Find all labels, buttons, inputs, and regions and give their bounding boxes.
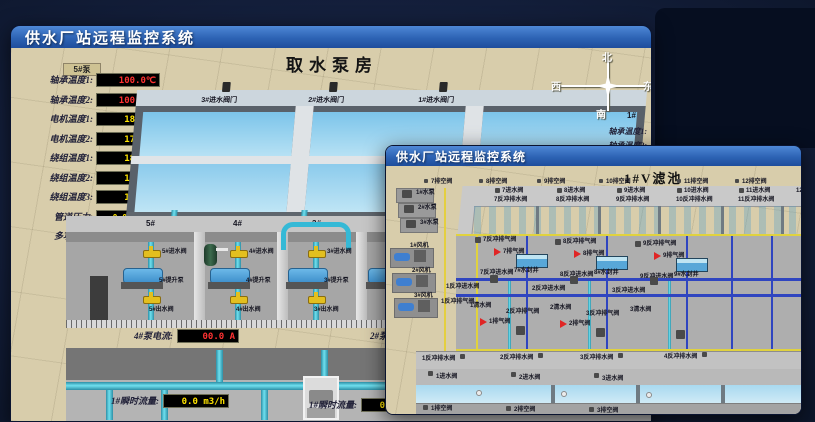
yellow-line	[456, 234, 801, 236]
desktop: { "colors": { "titlebar_blue": "#2d63b4"…	[0, 0, 815, 420]
pump-base	[121, 282, 163, 289]
valve-icon[interactable]	[702, 352, 707, 357]
valve-icon[interactable]	[596, 328, 605, 337]
inlet-valve-icon[interactable]	[677, 188, 682, 193]
inlet-valve-icon[interactable]	[495, 188, 500, 193]
vent-valve-icon[interactable]	[589, 407, 594, 412]
pump-label: 5#提升泵	[159, 278, 184, 284]
water-pump-icon[interactable]	[406, 220, 416, 228]
equipment-label: 3#风机	[414, 293, 433, 299]
vent-valve-label: 12排空阀	[742, 179, 767, 185]
seal-well-tank	[596, 256, 628, 270]
background-window	[655, 8, 815, 148]
upper-inlet-label: 8进水阀	[564, 188, 585, 194]
cell-number: 5#	[146, 220, 155, 228]
lower-vent-label: 1排空阀	[431, 406, 452, 412]
bw-air-label: 8反冲排气阀	[563, 239, 596, 245]
pool-divider	[598, 206, 601, 234]
compass-star	[595, 73, 621, 99]
fan-motor[interactable]	[396, 278, 412, 286]
seal-well-tank	[516, 254, 548, 268]
upper-inlet-label: 10进水阀	[684, 188, 709, 194]
valve-icon[interactable]	[516, 326, 525, 335]
window-title: 供水厂站远程监控系统	[25, 27, 195, 48]
blue-pipe	[456, 278, 801, 281]
upper-drain-label: 11反冲排水阀	[738, 197, 774, 203]
fan-box	[414, 250, 426, 262]
blue-pipe-vert	[771, 236, 773, 349]
valve-icon[interactable]	[428, 371, 433, 376]
filter-scene: 1#V滤池 7排空阀 8排空阀 9排空阀 10排空阀 11排空阀 12排空阀 1…	[386, 166, 801, 414]
pool-divider	[721, 385, 725, 403]
vent-valve-icon[interactable]	[599, 179, 603, 183]
current-value: 00.0 A	[177, 329, 239, 343]
blue-pipe-vert	[606, 236, 608, 349]
inlet-valve[interactable]	[143, 250, 161, 258]
bw-inlet2-label: 2反冲进水阀	[532, 286, 565, 292]
inlet-valve-label: 5#进水阀	[162, 249, 187, 255]
pool-divider	[658, 206, 661, 234]
valve-icon[interactable]	[618, 353, 623, 358]
pool-cell	[139, 112, 295, 156]
valve-icon[interactable]	[555, 239, 561, 245]
cell-number: 4#	[233, 220, 242, 228]
vent-valve-icon[interactable]	[537, 179, 541, 183]
readout-label: 绕组温度1:	[13, 154, 93, 163]
compass-south: 南	[596, 106, 606, 121]
lower-drain-label: 1反冲排水阀	[422, 356, 455, 362]
water-pump-icon[interactable]	[402, 190, 412, 198]
bw-air2-label: 2反冲排气阀	[506, 309, 539, 315]
cell1-bw-inlet-label: 1反冲进水阀	[446, 284, 479, 290]
readout-label: 绕组温度3:	[13, 193, 93, 202]
inlet-valve-icon[interactable]	[739, 188, 744, 193]
nozzle-dot	[646, 392, 652, 398]
outlet-valve-label: 3#出水阀	[314, 307, 339, 313]
blue-pipe	[456, 294, 801, 297]
side-label: 轴承温度1:	[571, 128, 647, 136]
seal-well-tank	[676, 258, 708, 272]
outlet-valve[interactable]	[230, 296, 248, 304]
pump-base	[208, 282, 250, 289]
upper-inlet-label: 7进水阀	[502, 188, 523, 194]
clean-valve-label: 2清水阀	[550, 305, 571, 311]
yellow-pipe	[444, 188, 446, 351]
blue-pipe-vert	[686, 236, 688, 349]
fan-motor[interactable]	[398, 303, 414, 311]
water-pump-icon[interactable]	[404, 205, 414, 213]
scene-title: 取水泵房	[286, 51, 378, 76]
vent-valve-label: 10排空阀	[606, 179, 631, 185]
vent-valve-label: 7排空阀	[431, 179, 452, 185]
inlet-valve-icon[interactable]	[557, 188, 562, 193]
outlet-valve-label: 4#出水阀	[236, 307, 261, 313]
flow-label: 1#瞬时流量:	[279, 401, 357, 410]
pipe	[668, 278, 671, 349]
clean-valve-label: 3清水阀	[630, 307, 651, 313]
nozzle-dot	[561, 391, 567, 397]
filter-titlebar[interactable]: 供水厂站远程监控系统	[386, 146, 801, 166]
lower-drain-label: 3反冲排水阀	[580, 355, 613, 361]
readout-value: 100.0℃	[96, 73, 160, 87]
lower-inlet-label: 2进水阀	[519, 375, 540, 381]
compass: 北 西 南 东	[546, 48, 651, 120]
blue-pipe-vert	[731, 236, 733, 349]
inlet-valve-label: 3#进水阀门	[201, 97, 237, 104]
yellow-line-vert	[476, 234, 478, 351]
equipment-label: 2#水泵	[418, 205, 437, 211]
compass-west: 西	[551, 78, 561, 93]
outlet-valve[interactable]	[143, 296, 161, 304]
lower-drain-label: 4反冲排水阀	[664, 354, 697, 360]
inlet-valve-icon[interactable]	[617, 188, 622, 193]
clean-valve-label: 1清水阀	[470, 303, 491, 309]
vent-valve-label: 9排空阀	[544, 179, 565, 185]
window-title: 供水厂站远程监控系统	[396, 148, 526, 165]
hall-pillar	[356, 232, 367, 320]
inlet-valve[interactable]	[230, 250, 248, 258]
vent-valve-icon[interactable]	[479, 179, 483, 183]
upper-inlet-label: 9进水阀	[624, 188, 645, 194]
lower-vent-label: 2排空阀	[514, 407, 535, 413]
inlet-valve-label: 4#进水阀	[249, 249, 274, 255]
compass-north: 北	[602, 49, 612, 64]
inlet-valve-icon[interactable]	[222, 82, 231, 92]
upper-drain-label: 7反冲排水阀	[494, 197, 527, 203]
outlet-valve-label: 5#出水阀	[149, 307, 174, 313]
upper-drain-label: 10反冲排水阀	[676, 197, 713, 203]
fan-box	[418, 300, 430, 312]
flow-value: 0.0 m3/h	[163, 394, 229, 408]
pool-divider	[636, 385, 640, 403]
upper-inlet-label: 11进水阀	[746, 188, 770, 194]
bw-air-label: 7反冲排气阀	[483, 237, 516, 243]
lower-inlet-label: 1进水阀	[436, 374, 457, 380]
outlet-valve[interactable]	[308, 296, 326, 304]
readout-label: 电机温度1:	[13, 115, 93, 124]
pump-label: 4#提升泵	[246, 278, 271, 284]
bw-air-label: 9反冲排气阀	[643, 241, 676, 247]
pump-label: 3#提升泵	[324, 278, 349, 284]
valve-icon[interactable]	[511, 372, 516, 377]
side-pump-tag: 1#	[627, 112, 636, 120]
inlet-valve-label: 3#进水阀	[327, 249, 352, 255]
readout-label: 绕组温度2:	[13, 174, 93, 183]
equipment-cabinet[interactable]	[303, 376, 339, 420]
vent-valve-icon[interactable]	[506, 406, 511, 411]
vent-valve-icon[interactable]	[424, 179, 428, 183]
vent-valve-label: 11排空阀	[684, 179, 708, 185]
seal-well-label: 8#水封井	[594, 270, 619, 276]
valve-icon[interactable]	[490, 275, 498, 283]
valve-icon[interactable]	[635, 241, 641, 247]
equipment-label: 2#风机	[412, 268, 431, 274]
valve-icon[interactable]	[650, 277, 658, 285]
valve-icon[interactable]	[594, 373, 599, 378]
valve-icon[interactable]	[570, 276, 578, 284]
bw-air2-label: 3反冲排气阀	[586, 311, 619, 317]
readout-label: 轴承温度1:	[13, 76, 93, 85]
upper-drain-label: 8反冲排水阀	[556, 197, 589, 203]
hall-pillar	[194, 232, 205, 320]
valve-icon[interactable]	[475, 237, 481, 243]
vent-valve-label: 8排空阀	[486, 179, 507, 185]
compass-east: 东	[643, 78, 651, 93]
air-valve-label: 2排气阀	[569, 321, 590, 327]
vent-valve-icon[interactable]	[423, 405, 428, 410]
hall-doorway	[90, 276, 108, 320]
pool-divider	[551, 385, 555, 403]
vent-valve-icon[interactable]	[677, 179, 681, 183]
inlet-valve-icon[interactable]	[329, 82, 338, 92]
current-label: 4#泵电流:	[111, 332, 173, 341]
fan-box	[416, 275, 428, 287]
filter-window[interactable]: 供水厂站远程监控系统 1#V滤池 7排空阀 8排空阀 9排空阀 10排空阀 11…	[385, 145, 802, 415]
pipe	[216, 350, 223, 386]
valve-icon[interactable]	[460, 354, 465, 359]
pump-base	[286, 282, 328, 289]
seal-well-label: 7#水封井	[514, 268, 539, 274]
lower-pool-water	[416, 385, 801, 403]
pool-cell	[134, 164, 290, 212]
lower-inlet-label: 3进水阀	[602, 376, 623, 382]
pool-divider	[721, 206, 724, 234]
vent-valve-icon[interactable]	[735, 179, 739, 183]
lower-vent-label: 3排空阀	[597, 408, 618, 414]
nozzle-dot	[476, 390, 482, 396]
equipment-label: 1#风机	[410, 243, 429, 249]
inlet-valve-label: 2#进水阀门	[308, 97, 344, 104]
filter-title: 1#V滤池	[624, 168, 682, 187]
upper-pool-water	[474, 206, 801, 234]
pipe	[261, 390, 268, 420]
green-device-stem	[216, 248, 228, 251]
valve-icon[interactable]	[676, 330, 685, 339]
fan-motor[interactable]	[394, 253, 410, 261]
lower-drain-label: 2反冲排水阀	[500, 355, 533, 361]
equipment-label: 1#水泵	[416, 190, 435, 196]
inlet-valve[interactable]	[308, 250, 326, 258]
flow-label: 1#瞬时流量:	[81, 397, 159, 406]
upper-inlet-label: 12进水阀	[796, 188, 801, 194]
pool-divider	[781, 206, 784, 234]
valve-icon[interactable]	[538, 353, 543, 358]
readout-label: 轴承温度2:	[13, 96, 93, 105]
readout-label: 电机温度2:	[13, 135, 93, 144]
pool-divider	[536, 206, 539, 234]
air-valve-label: 1排气阀	[489, 319, 510, 325]
inlet-valve-label: 1#进水阀门	[418, 97, 454, 104]
pump-house-titlebar[interactable]: 供水厂站远程监控系统	[11, 26, 651, 48]
equipment-label: 3#水泵	[420, 220, 439, 226]
inlet-valve-icon[interactable]	[439, 82, 448, 92]
blue-pipe-vert	[526, 236, 528, 349]
upper-drain-label: 9反冲排水阀	[616, 197, 649, 203]
